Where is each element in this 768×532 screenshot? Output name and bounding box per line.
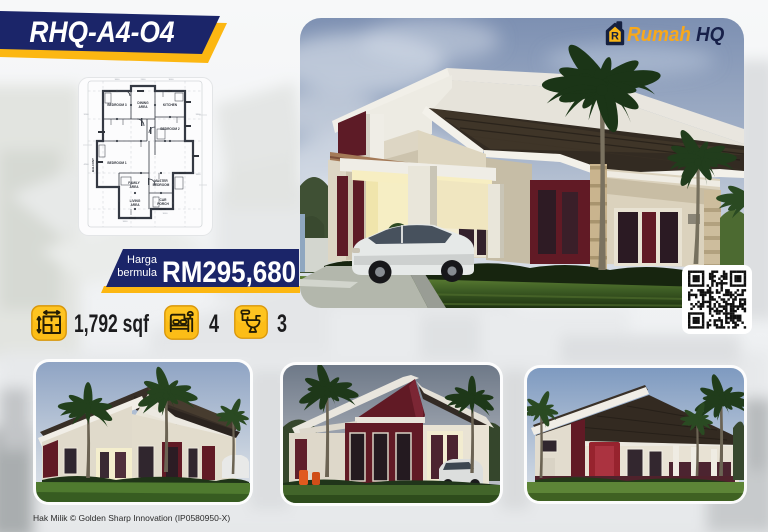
svg-text:3900: 3900 [196,174,202,176]
svg-text:Harga: Harga [127,254,158,266]
svg-text:BEDROOM 3: BEDROOM 3 [107,103,127,107]
svg-text:3300: 3300 [196,114,202,116]
svg-text:3000: 3000 [163,213,169,215]
svg-text:R: R [611,31,619,43]
svg-text:3000: 3000 [169,79,175,81]
svg-text:HQ: HQ [696,23,724,46]
svg-text:bermula: bermula [117,267,158,279]
svg-text:BALCONY: BALCONY [91,158,95,172]
svg-text:3600: 3600 [123,221,129,223]
svg-text:BEDROOM 1: BEDROOM 1 [107,161,127,165]
svg-text:AREA: AREA [130,203,140,207]
svg-text:KITCHEN: KITCHEN [163,103,178,107]
svg-text:3100: 3100 [84,114,90,116]
svg-text:RM295,680: RM295,680 [162,255,296,288]
svg-text:RHQ-A4-O4: RHQ-A4-O4 [29,14,174,48]
svg-text:4200: 4200 [84,164,90,166]
svg-text:AREA: AREA [138,105,148,109]
svg-text:Rumah: Rumah [627,23,691,46]
svg-text:2400: 2400 [141,79,147,81]
svg-text:BEDROOM: BEDROOM [153,183,170,187]
svg-text:3600: 3600 [115,79,121,81]
svg-text:AREA: AREA [129,185,139,189]
